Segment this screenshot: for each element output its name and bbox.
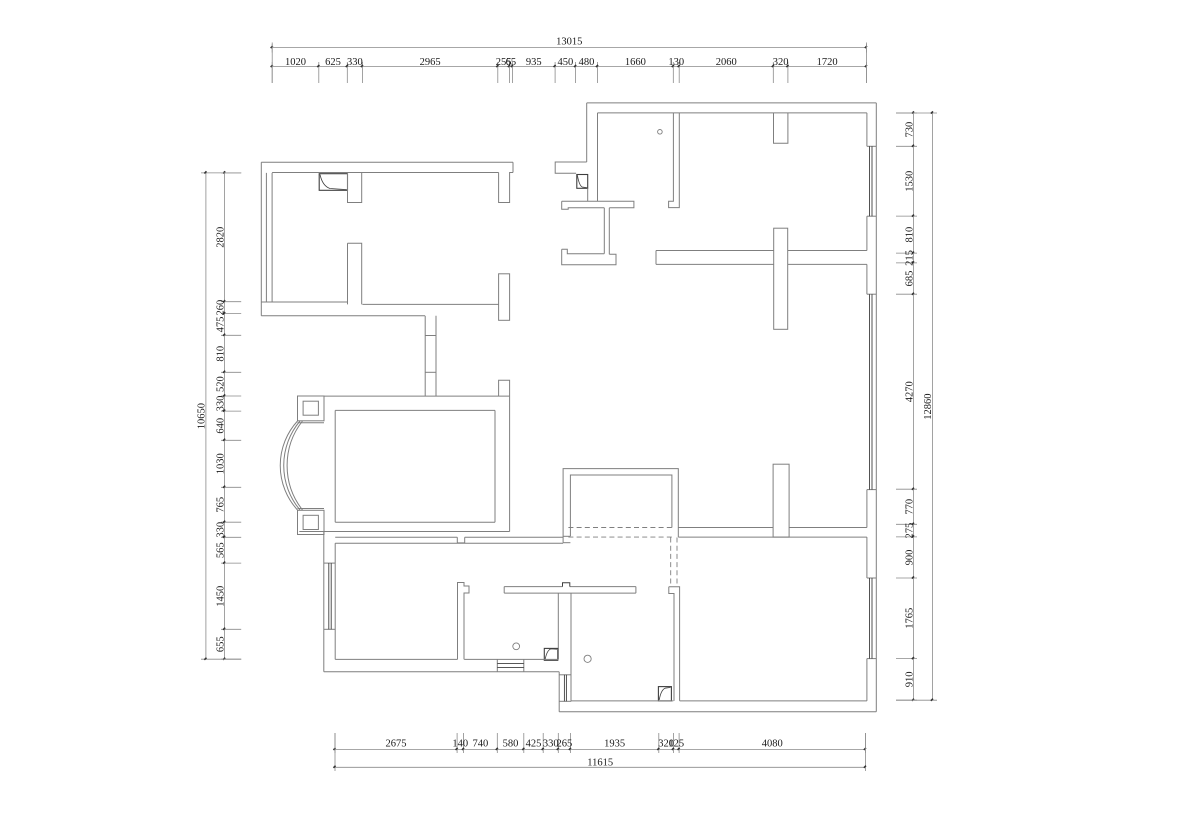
svg-text:2820: 2820 [215,227,226,248]
svg-text:810: 810 [904,227,915,243]
svg-text:10650: 10650 [197,403,208,429]
svg-text:730: 730 [904,122,915,138]
svg-text:810: 810 [215,346,226,362]
svg-text:2965: 2965 [420,57,441,68]
svg-text:1720: 1720 [817,57,838,68]
svg-text:13015: 13015 [556,37,582,48]
svg-text:320: 320 [773,57,789,68]
svg-text:1935: 1935 [604,738,625,749]
svg-text:1765: 1765 [904,608,915,629]
svg-text:655: 655 [215,636,226,652]
svg-text:1660: 1660 [625,57,646,68]
svg-text:4080: 4080 [762,738,783,749]
svg-text:450: 450 [557,57,573,68]
svg-text:330: 330 [215,522,226,538]
svg-text:685: 685 [904,271,915,287]
svg-text:770: 770 [904,499,915,515]
svg-text:1530: 1530 [904,171,915,192]
svg-text:475: 475 [215,317,226,333]
svg-text:765: 765 [215,497,226,513]
svg-text:275: 275 [904,523,915,539]
svg-text:140: 140 [452,738,468,749]
svg-text:425: 425 [526,738,542,749]
svg-text:1450: 1450 [215,586,226,607]
svg-text:580: 580 [503,738,519,749]
svg-text:11615: 11615 [587,758,613,769]
svg-text:2060: 2060 [716,57,737,68]
svg-text:935: 935 [526,57,542,68]
svg-text:65: 65 [506,57,517,68]
svg-text:565: 565 [215,542,226,558]
svg-text:12860: 12860 [923,393,934,419]
svg-text:130: 130 [668,57,684,68]
svg-text:625: 625 [325,57,341,68]
svg-text:900: 900 [904,550,915,566]
svg-text:1030: 1030 [215,453,226,474]
svg-text:330: 330 [215,396,226,412]
svg-text:265: 265 [556,738,572,749]
svg-text:740: 740 [473,738,489,749]
svg-text:480: 480 [579,57,595,68]
svg-text:260: 260 [215,300,226,316]
svg-text:520: 520 [215,376,226,392]
svg-text:330: 330 [347,57,363,68]
svg-text:215: 215 [904,250,915,266]
svg-text:1020: 1020 [285,57,306,68]
svg-text:910: 910 [904,672,915,688]
svg-text:4270: 4270 [904,381,915,402]
svg-text:125: 125 [668,738,684,749]
svg-text:2675: 2675 [386,738,407,749]
svg-text:640: 640 [215,418,226,434]
